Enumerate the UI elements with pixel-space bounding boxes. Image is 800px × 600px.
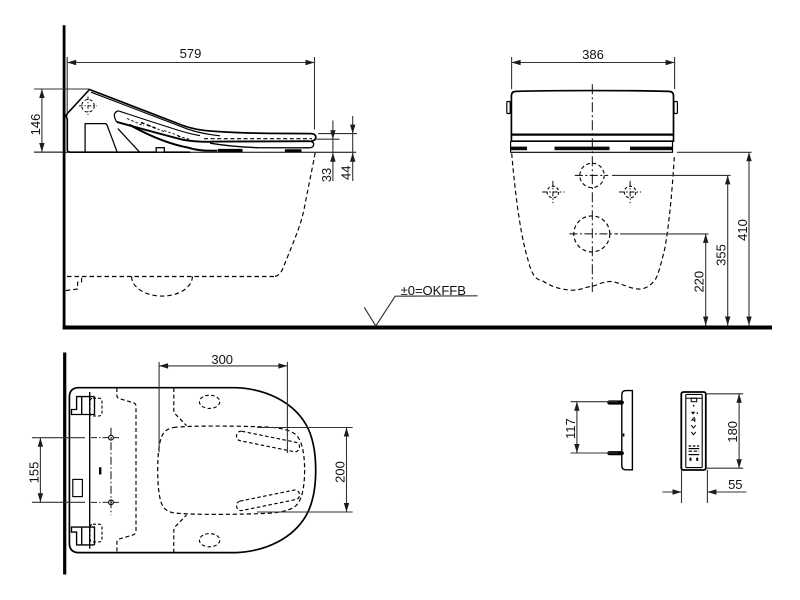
svg-text:55: 55 [728,477,742,492]
svg-text:355: 355 [714,244,729,266]
svg-text:±0=OKFFB: ±0=OKFFB [401,283,466,298]
svg-text:155: 155 [26,462,41,484]
svg-text:33: 33 [319,168,334,182]
svg-text:410: 410 [735,219,750,241]
svg-text:220: 220 [692,271,707,293]
svg-text:180: 180 [725,421,740,443]
svg-text:579: 579 [180,46,202,61]
svg-text:146: 146 [28,114,43,136]
svg-text:44: 44 [339,165,354,179]
svg-text:117: 117 [563,418,578,439]
svg-text:300: 300 [211,352,233,367]
svg-text:386: 386 [582,47,604,62]
svg-text:200: 200 [333,461,348,483]
